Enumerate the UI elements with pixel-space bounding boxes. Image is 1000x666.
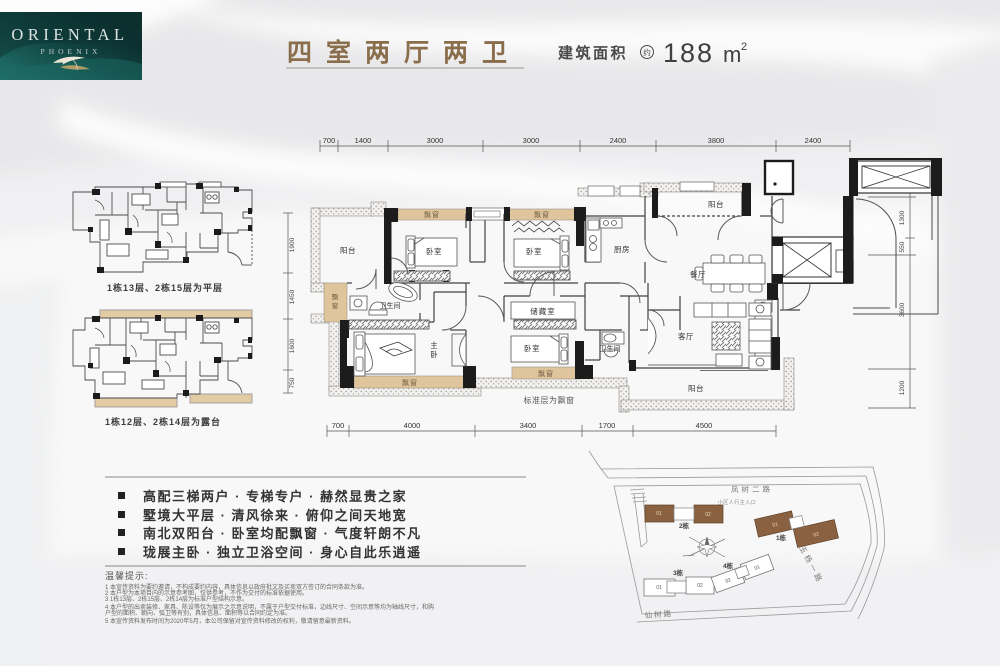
- svg-text:4500: 4500: [696, 421, 713, 430]
- svg-text:700: 700: [332, 421, 345, 430]
- svg-text:标准层为飘窗: 标准层为飘窗: [524, 395, 575, 405]
- svg-text:m: m: [723, 42, 741, 67]
- svg-text:01: 01: [656, 585, 662, 591]
- svg-text:温馨提示:: 温馨提示:: [105, 570, 149, 581]
- svg-text:卧室: 卧室: [524, 343, 540, 353]
- svg-text:仙树路: 仙树路: [644, 608, 673, 620]
- svg-text:四室两厅两卫: 四室两厅两卫: [287, 38, 521, 67]
- svg-text:4000: 4000: [404, 421, 421, 430]
- svg-text:墅境大平层 · 清风徐来 · 俯仰之间天地宽: 墅境大平层 · 清风徐来 · 俯仰之间天地宽: [143, 508, 407, 523]
- svg-text:PHOENIX: PHOENIX: [41, 47, 102, 56]
- svg-text:飘: 飘: [332, 293, 339, 301]
- svg-text:2 本户型为本项目内的示意参考图，仅供参考，不作为交付的标准: 2 本户型为本项目内的示意参考图，仅供参考，不作为交付的标准依据使用。: [105, 589, 308, 597]
- svg-text:户型的面积、朝向、弧卫等有别，具体信息、面积等以合同约定为准: 户型的面积、朝向、弧卫等有别，具体信息、面积等以合同约定为准。: [105, 609, 291, 617]
- svg-text:750: 750: [289, 377, 296, 388]
- svg-text:1600: 1600: [289, 338, 296, 353]
- svg-text:窗: 窗: [332, 301, 339, 310]
- svg-text:2: 2: [741, 41, 747, 53]
- svg-text:主: 主: [430, 340, 438, 350]
- svg-text:卫生间: 卫生间: [380, 301, 401, 310]
- svg-text:凤树二路: 凤树二路: [731, 484, 773, 495]
- svg-text:小区人行主入口: 小区人行主入口: [718, 499, 757, 506]
- svg-text:珑展主卧 · 独立卫浴空间 · 身心自此乐逍遥: 珑展主卧 · 独立卫浴空间 · 身心自此乐逍遥: [143, 545, 422, 560]
- svg-text:4栋: 4栋: [723, 561, 734, 570]
- svg-text:3 1栋13层、2栋15层、2栋14层为标准户型结构示意。: 3 1栋13层、2栋15层、2栋14层为标准户型结构示意。: [105, 595, 248, 603]
- svg-text:1栋12层、2栋14层为露台: 1栋12层、2栋14层为露台: [105, 416, 221, 427]
- svg-text:卧: 卧: [430, 350, 438, 359]
- svg-text:188: 188: [663, 38, 714, 68]
- svg-text:飘窗: 飘窗: [538, 369, 554, 378]
- svg-text:约: 约: [643, 47, 651, 57]
- svg-text:1900: 1900: [289, 237, 296, 252]
- svg-text:阳台: 阳台: [688, 383, 704, 393]
- svg-text:3600: 3600: [899, 302, 906, 317]
- svg-text:ORIENTAL: ORIENTAL: [11, 25, 128, 44]
- svg-text:3000: 3000: [427, 136, 444, 145]
- svg-text:02: 02: [697, 583, 703, 589]
- svg-text:卧室: 卧室: [426, 246, 442, 256]
- svg-text:2400: 2400: [610, 136, 627, 145]
- svg-text:4 本户型的出卖装修、家具、陈设等仅为展示之示意说明，不属于: 4 本户型的出卖装修、家具、陈设等仅为展示之示意说明，不属于户型交付标准，边线尺…: [105, 603, 434, 611]
- svg-text:南北双阳台 · 卧室均配飘窗 · 气度轩朗不凡: 南北双阳台 · 卧室均配飘窗 · 气度轩朗不凡: [143, 526, 422, 541]
- svg-text:飘窗: 飘窗: [402, 378, 418, 387]
- svg-text:阳台: 阳台: [340, 245, 356, 255]
- svg-text:2400: 2400: [805, 136, 822, 145]
- svg-text:5 本宣传资料发布时间为2020年5月，本公司保留对宣传资料: 5 本宣传资料发布时间为2020年5月，本公司保留对宣传资料修改的权利，敬请留意…: [105, 617, 355, 625]
- svg-text:1栋13层、2栋15层为平层: 1栋13层、2栋15层为平层: [107, 282, 223, 293]
- svg-text:高配三梯两户 · 专梯专户 · 赫然显贵之家: 高配三梯两户 · 专梯专户 · 赫然显贵之家: [143, 489, 407, 504]
- svg-text:1700: 1700: [599, 421, 616, 430]
- svg-text:3800: 3800: [708, 136, 725, 145]
- svg-text:餐厅: 餐厅: [690, 270, 706, 279]
- svg-text:1栋: 1栋: [776, 533, 787, 542]
- svg-text:飘窗: 飘窗: [424, 210, 440, 219]
- svg-text:700: 700: [323, 136, 336, 145]
- svg-text:01: 01: [656, 511, 662, 517]
- svg-text:阳台: 阳台: [708, 199, 724, 209]
- svg-text:1200: 1200: [899, 380, 906, 395]
- svg-text:1450: 1450: [289, 289, 296, 304]
- svg-text:3栋: 3栋: [673, 568, 684, 577]
- svg-text:550: 550: [899, 241, 906, 252]
- svg-text:厨房: 厨房: [614, 244, 630, 254]
- svg-text:1 本宣传资料为要约邀请，不构成要约内容，具体信息以政府批文: 1 本宣传资料为要约邀请，不构成要约内容，具体信息以政府批文及买卖双方签订的合同…: [105, 583, 368, 591]
- svg-text:02: 02: [705, 512, 711, 518]
- svg-text:客厅: 客厅: [678, 331, 694, 341]
- svg-text:1300: 1300: [899, 210, 906, 225]
- svg-text:2栋: 2栋: [679, 521, 690, 530]
- svg-text:飘窗: 飘窗: [534, 210, 550, 219]
- svg-text:建筑面积: 建筑面积: [558, 44, 628, 62]
- svg-text:卧室: 卧室: [526, 246, 542, 256]
- svg-text:1400: 1400: [355, 136, 372, 145]
- svg-text:3000: 3000: [523, 136, 540, 145]
- svg-text:卫生间: 卫生间: [600, 344, 621, 353]
- svg-text:储藏室: 储藏室: [530, 306, 556, 316]
- svg-text:3400: 3400: [520, 421, 537, 430]
